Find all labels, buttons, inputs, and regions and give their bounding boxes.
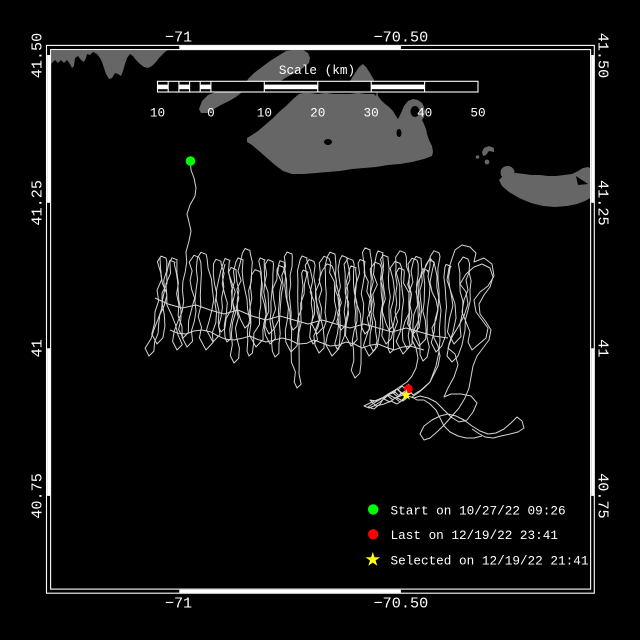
svg-text:41: 41 [594,339,612,357]
svg-text:40.75: 40.75 [594,473,612,519]
svg-text:−70.50: −70.50 [374,29,429,47]
svg-text:Scale (km): Scale (km) [279,63,355,78]
svg-text:Selected on 12/19/22 21:41: Selected on 12/19/22 21:41 [391,554,589,569]
svg-text:50: 50 [470,105,485,120]
svg-text:Start on 10/27/22 09:26: Start on 10/27/22 09:26 [391,503,566,518]
svg-text:41.25: 41.25 [29,180,47,226]
svg-text:41.50: 41.50 [29,33,47,79]
svg-text:Last on 12/19/22 23:41: Last on 12/19/22 23:41 [391,528,559,543]
svg-text:10: 10 [150,105,165,120]
svg-text:−70.50: −70.50 [374,595,429,613]
svg-text:0: 0 [207,105,215,120]
svg-text:10: 10 [257,105,272,120]
svg-text:40.75: 40.75 [29,473,47,519]
svg-text:41.50: 41.50 [594,33,612,79]
svg-text:41.25: 41.25 [594,180,612,226]
svg-text:40: 40 [417,105,432,120]
svg-text:−71: −71 [165,29,192,47]
svg-text:−71: −71 [165,595,192,613]
svg-text:20: 20 [310,105,325,120]
svg-text:41: 41 [29,339,47,357]
svg-text:30: 30 [364,105,379,120]
